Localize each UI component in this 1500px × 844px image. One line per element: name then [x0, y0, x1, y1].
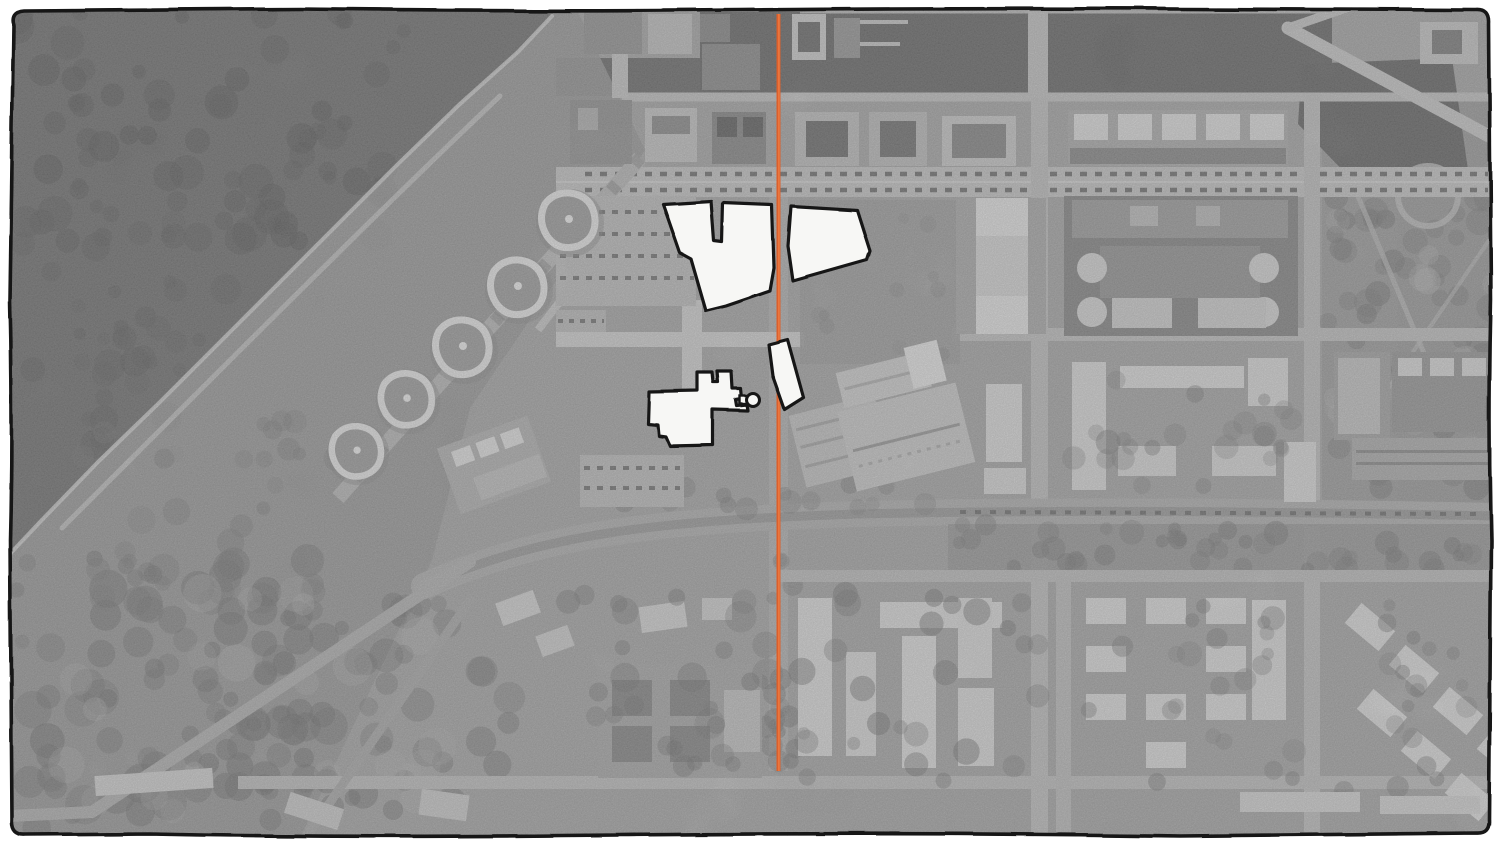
footprint-knob	[747, 394, 760, 407]
texture	[0, 0, 1500, 844]
annotated-aerial-map	[0, 0, 1500, 844]
aerial-figure	[0, 0, 1500, 844]
map-layers	[0, 0, 1500, 844]
